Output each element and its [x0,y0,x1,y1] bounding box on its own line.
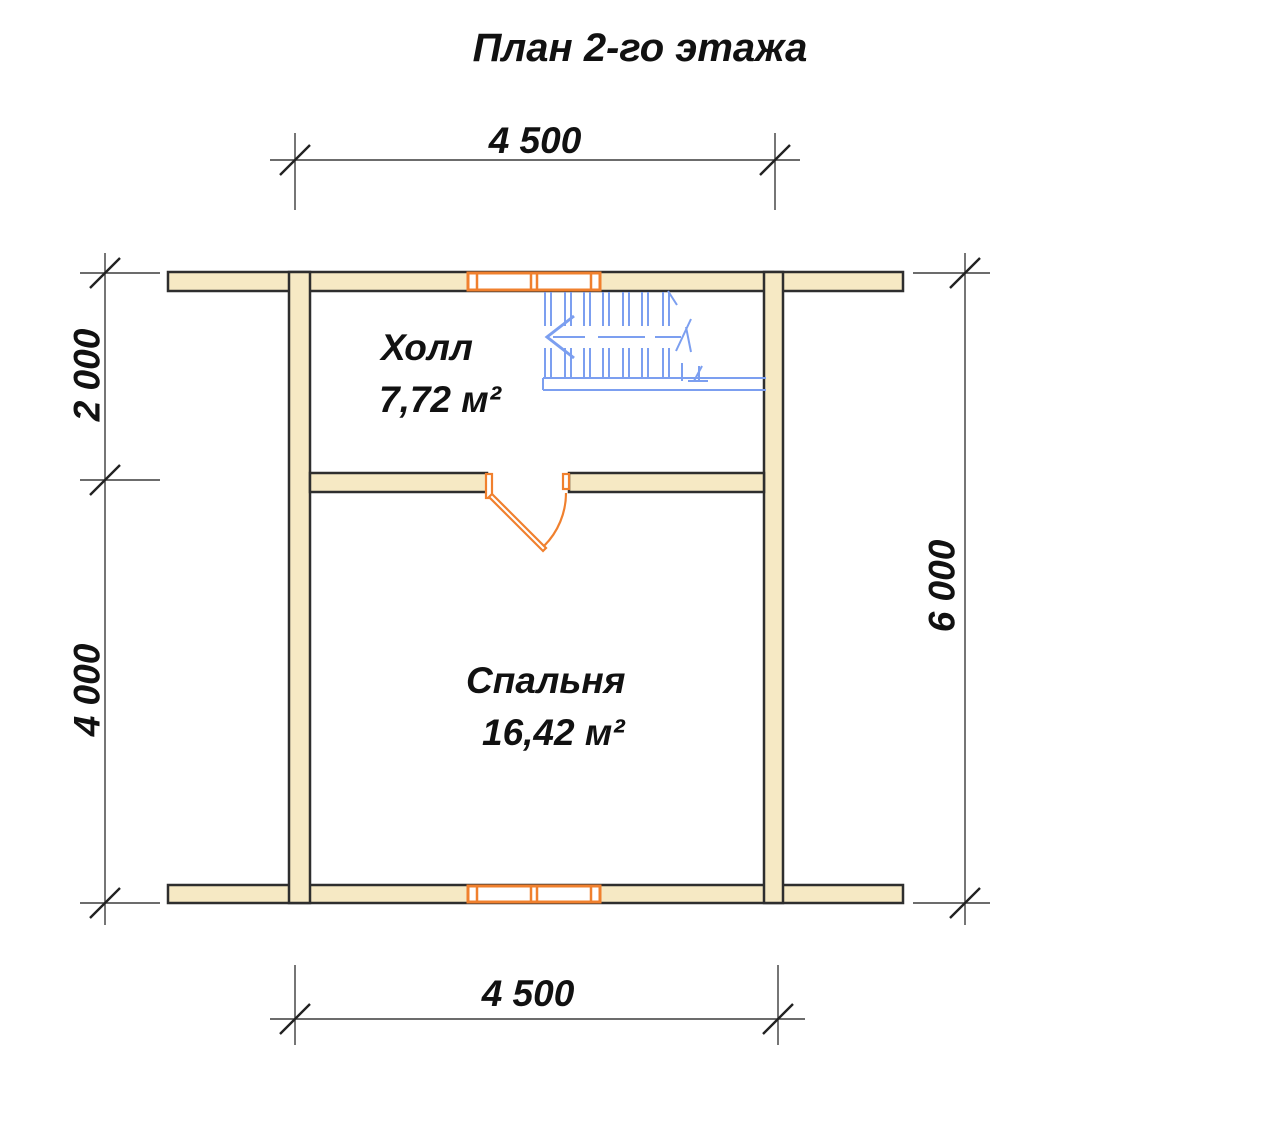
door-swing-arc [544,493,566,546]
door-jamb-right [563,474,569,489]
right-exterior-wall [764,272,783,903]
dimension-label-top: 4 500 [489,122,582,159]
room-bedroom-area: 16,42 м² [482,714,625,751]
staircase [543,291,766,390]
bottom-window [468,886,600,902]
dimension-label-bottom: 4 500 [482,975,575,1012]
walls [168,272,903,903]
door-leaf [489,494,546,551]
dimension-label-total-depth: 6 000 [924,540,961,633]
dimension-label-hall-depth: 2 000 [69,329,106,422]
stair-stringer [543,378,766,390]
room-hall-area: 7,72 м² [379,381,501,418]
floor-plan-canvas: План 2-го этажа 4 500 4 500 2 000 4 000 … [0,0,1280,1123]
room-bedroom-name: Спальня [466,662,625,699]
left-exterior-wall [289,272,310,903]
top-window [468,273,600,290]
dimension-label-bedroom-depth: 4 000 [69,644,106,737]
stair-treads [545,292,669,377]
room-hall-name: Холл [381,329,473,366]
interior-wall-right-segment [569,473,764,492]
plan-title: План 2-го этажа [473,28,808,68]
interior-door [486,474,569,551]
interior-wall-left-segment [310,473,487,492]
floor-plan-drawing [0,0,1280,1123]
